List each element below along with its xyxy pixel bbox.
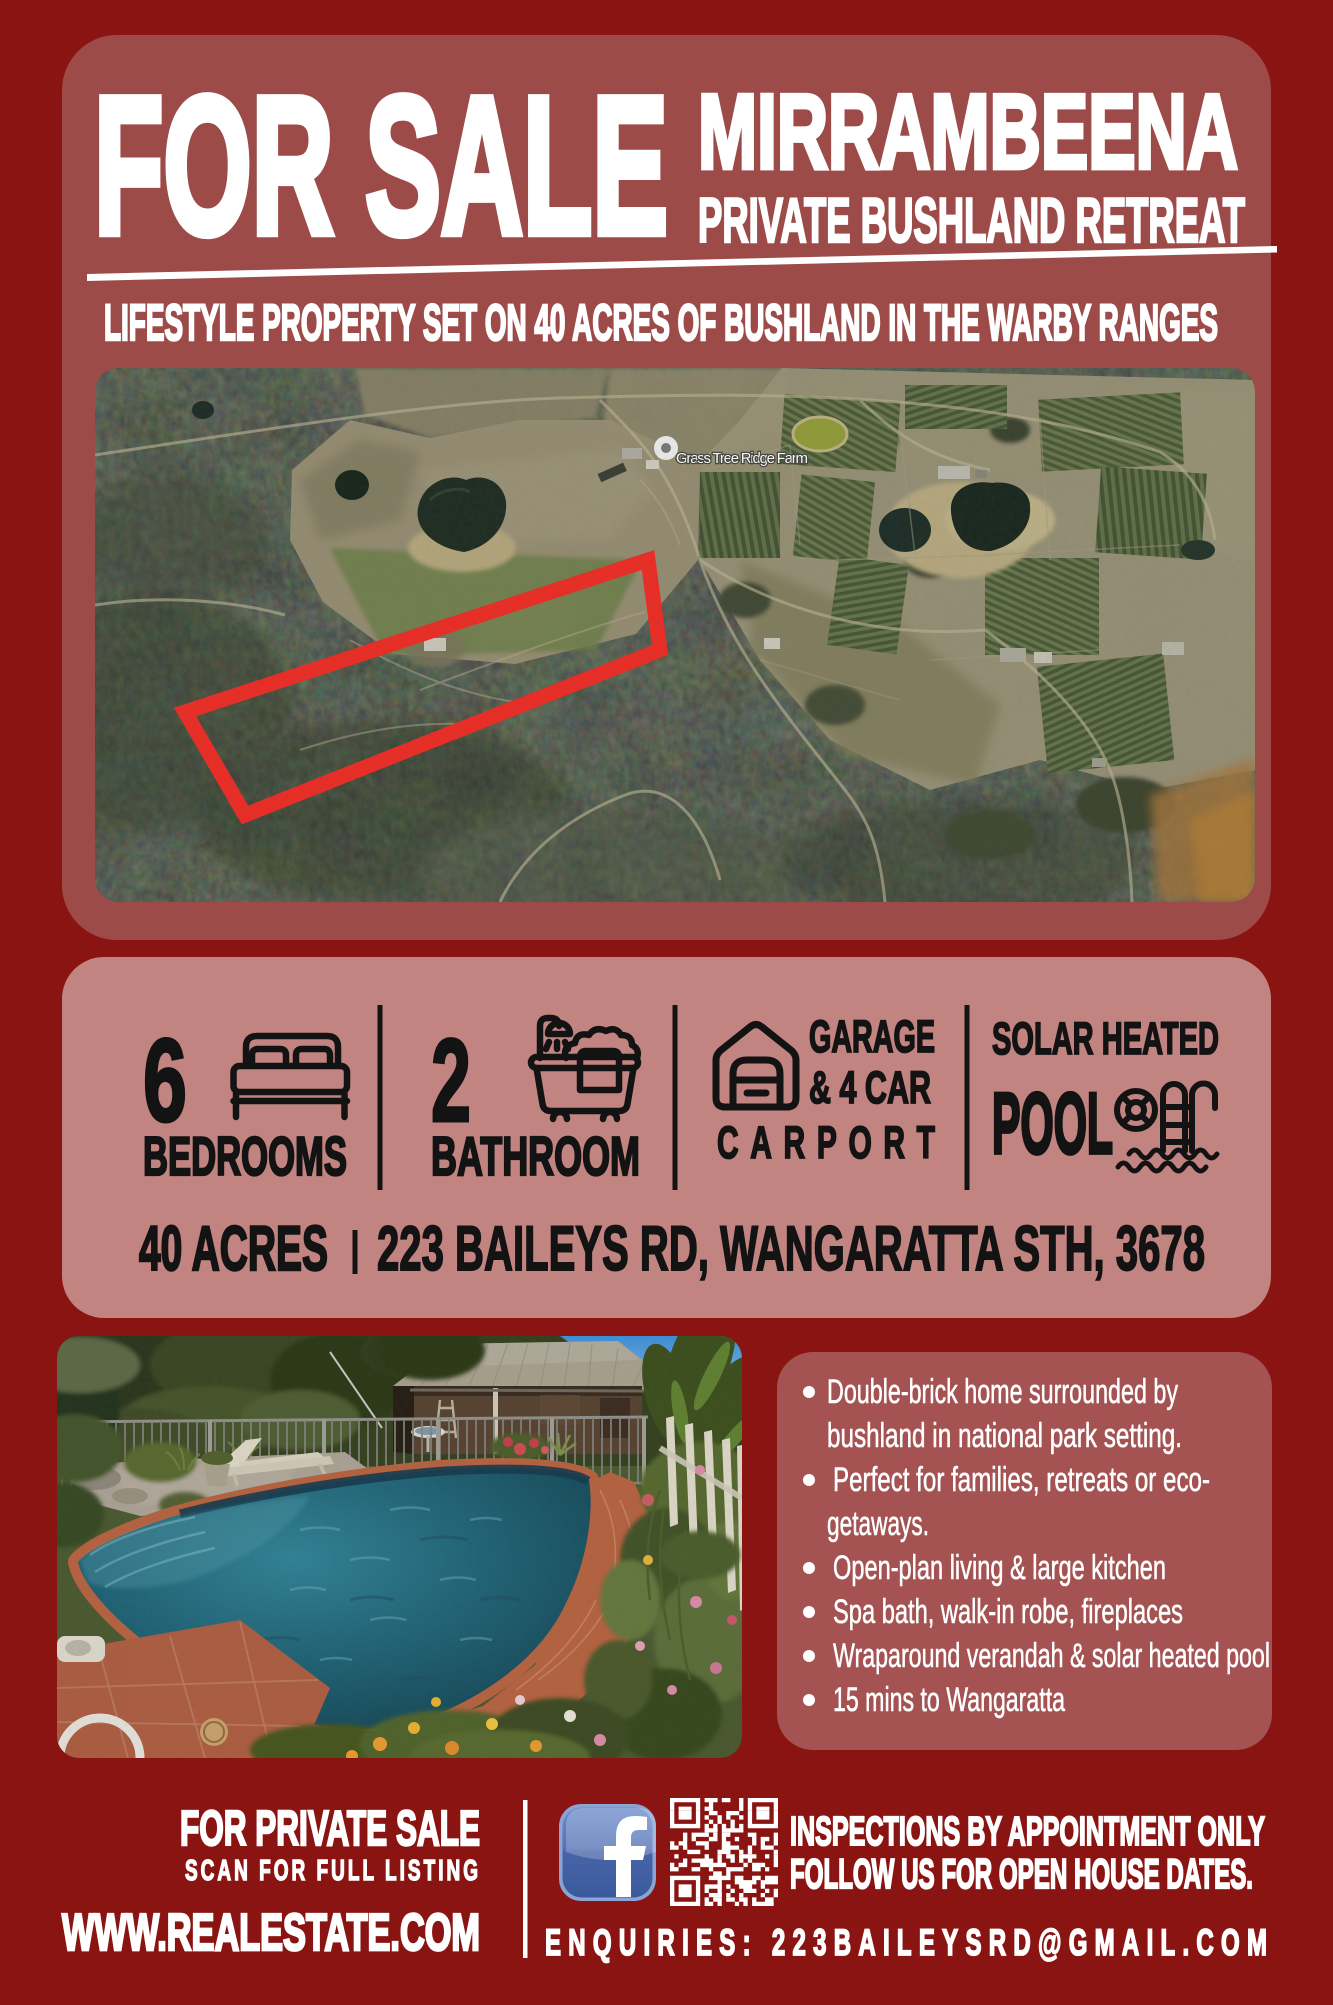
svg-text:FOLLOW US FOR OPEN HOUSE DATES: FOLLOW US FOR OPEN HOUSE DATES. [790, 1852, 1253, 1898]
svg-text:223 BAILEYS RD, WANGARATTA STH: 223 BAILEYS RD, WANGARATTA STH, 3678 [377, 1214, 1205, 1284]
svg-text:BEDROOMS: BEDROOMS [143, 1125, 347, 1187]
svg-text:PRIVATE BUSHLAND RETREAT: PRIVATE BUSHLAND RETREAT [698, 185, 1245, 256]
svg-text:Wraparound verandah & solar he: Wraparound verandah & solar heated pool [833, 1637, 1270, 1675]
svg-text:SCAN FOR FULL LISTING: SCAN FOR FULL LISTING [185, 1855, 478, 1887]
svg-text:LIFESTYLE PROPERTY SET ON 40 A: LIFESTYLE PROPERTY SET ON 40 ACRES OF BU… [104, 294, 1218, 351]
svg-text:INSPECTIONS BY APPOINTMENT ONL: INSPECTIONS BY APPOINTMENT ONLY [790, 1809, 1265, 1854]
svg-text:40 ACRES: 40 ACRES [139, 1213, 328, 1284]
svg-text:FOR SALE: FOR SALE [94, 57, 668, 276]
svg-text:Perfect for families, retreats: Perfect for families, retreats or eco- [833, 1461, 1210, 1499]
svg-text:SOLAR HEATED: SOLAR HEATED [992, 1014, 1219, 1065]
svg-text:MIRRAMBEENA: MIRRAMBEENA [698, 73, 1238, 191]
svg-text:FOR PRIVATE SALE: FOR PRIVATE SALE [180, 1801, 480, 1856]
svg-text:BATHROOM: BATHROOM [431, 1125, 640, 1186]
svg-text:15 mins to Wangaratta: 15 mins to Wangaratta [833, 1681, 1065, 1719]
svg-text:Open-plan living & large kitch: Open-plan living & large kitchen [833, 1549, 1166, 1587]
svg-text:getaways.: getaways. [827, 1505, 929, 1543]
svg-text:bushland in national park sett: bushland in national park setting. [827, 1417, 1182, 1455]
svg-text:WWW.REALESTATE.COM: WWW.REALESTATE.COM [62, 1904, 480, 1962]
svg-text:CARPORT: CARPORT [717, 1118, 935, 1169]
svg-text:Double-brick home surrounded b: Double-brick home surrounded by [827, 1373, 1179, 1411]
svg-text:POOL: POOL [992, 1074, 1113, 1171]
svg-text:& 4 CAR: & 4 CAR [809, 1063, 931, 1114]
svg-text:Spa bath, walk-in robe, firepl: Spa bath, walk-in robe, fireplaces [833, 1593, 1183, 1631]
svg-text:GARAGE: GARAGE [809, 1013, 935, 1063]
